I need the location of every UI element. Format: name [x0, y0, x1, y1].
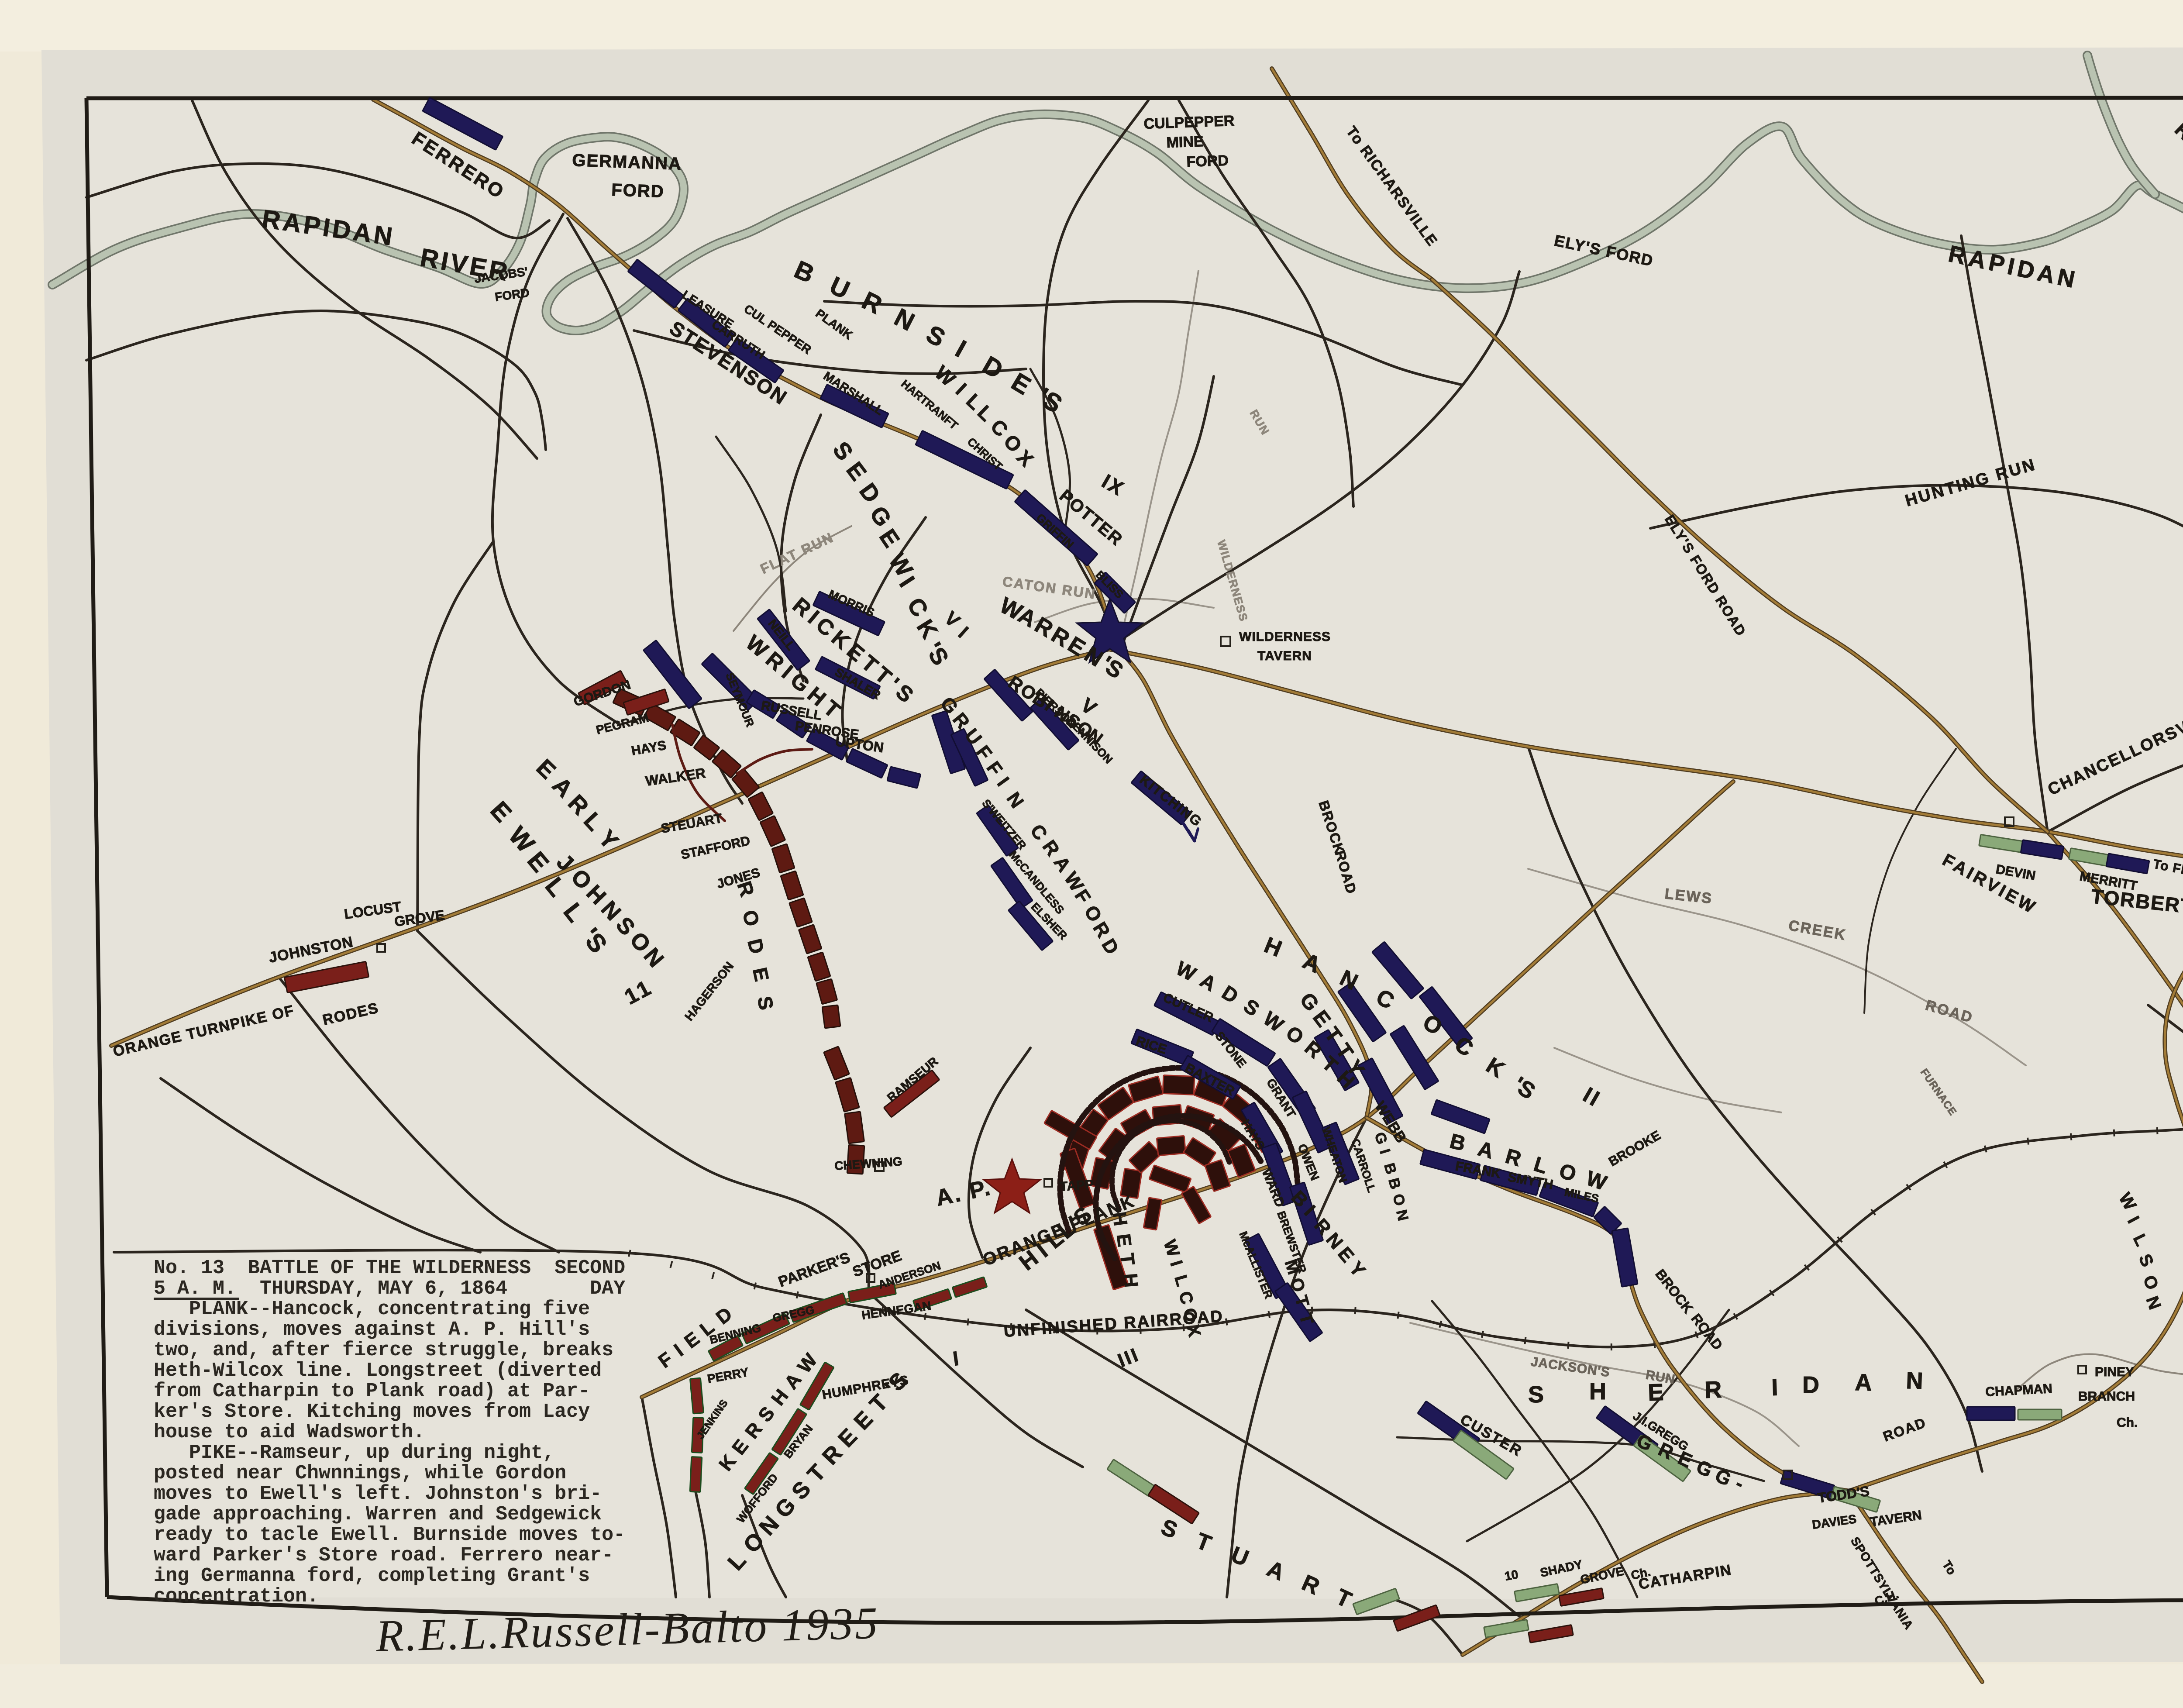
svg-text:N: N [1906, 1367, 1924, 1394]
svg-text:PIKE--Ramseur, up during night: PIKE--Ramseur, up during night, [154, 1442, 554, 1464]
svg-text:ing Germanna ford, completing: ing Germanna ford, completing Grant's [154, 1565, 590, 1587]
svg-text:TAPP: TAPP [1059, 1178, 1094, 1194]
svg-text:concentration.: concentration. [154, 1585, 319, 1608]
svg-text:I: I [1771, 1374, 1778, 1401]
svg-text:PINEY: PINEY [2095, 1365, 2134, 1379]
svg-text:from Catharpin to Plank road): from Catharpin to Plank road) at Par- [154, 1380, 590, 1402]
svg-text:FORD: FORD [611, 180, 665, 201]
svg-text:R: R [1704, 1377, 1722, 1403]
svg-text:WILDERNESS: WILDERNESS [1239, 630, 1331, 644]
svg-text:ready to tacle Ewell. Burnside: ready to tacle Ewell. Burnside moves to- [154, 1524, 625, 1546]
svg-text:5 A. M. THURSDAY, MAY 6, 1864: 5 A. M. THURSDAY, MAY 6, 1864 DAY [154, 1278, 625, 1300]
svg-text:H: H [1589, 1378, 1606, 1405]
svg-text:gade approaching. Warren and S: gade approaching. Warren and Sedgewick [154, 1503, 602, 1525]
svg-text:H: H [1119, 1273, 1142, 1288]
svg-text:10: 10 [1504, 1567, 1519, 1583]
svg-text:A: A [1855, 1369, 1873, 1396]
svg-text:MINE: MINE [1166, 133, 1204, 151]
svg-text:S: S [1528, 1381, 1544, 1408]
svg-text:posted near Chwnnings, while G: posted near Chwnnings, while Gordon [154, 1462, 566, 1484]
svg-text:house to aid Wadsworth.: house to aid Wadsworth. [154, 1421, 425, 1443]
svg-text:ker's Store. Kitching moves fr: ker's Store. Kitching moves from Lacy [154, 1401, 590, 1423]
svg-text:D: D [1802, 1372, 1819, 1398]
svg-text:FORD: FORD [1186, 152, 1229, 170]
svg-text:GERMANNA: GERMANNA [572, 151, 682, 174]
svg-text:moves to Ewell's left. Johnsto: moves to Ewell's left. Johnston's bri- [154, 1483, 602, 1505]
svg-text:ward Parker's Store road. Ferr: ward Parker's Store road. Ferrero near- [154, 1544, 613, 1567]
svg-text:BRANCH: BRANCH [2078, 1389, 2135, 1404]
svg-text:CULPEPPER: CULPEPPER [1143, 113, 1235, 132]
svg-text:divisions, moves against A. P.: divisions, moves against A. P. Hill's [154, 1319, 590, 1341]
svg-text:PLANK--Hancock, concentrating: PLANK--Hancock, concentrating five [154, 1298, 590, 1320]
svg-text:No. 13 BATTLE OF THE WILDERNE: No. 13 BATTLE OF THE WILDERNESS SECOND [154, 1257, 625, 1279]
svg-text:Ch.: Ch. [2117, 1415, 2138, 1430]
svg-text:two, and, after fierce struggl: two, and, after fierce struggle, breaks [154, 1339, 613, 1361]
svg-text:T: T [1116, 1252, 1139, 1266]
svg-text:E: E [1112, 1233, 1135, 1248]
svg-text:Heth-Wilcox line. Longstreet (: Heth-Wilcox line. Longstreet (diverted [154, 1360, 602, 1382]
svg-text:TAVERN: TAVERN [1257, 649, 1312, 663]
